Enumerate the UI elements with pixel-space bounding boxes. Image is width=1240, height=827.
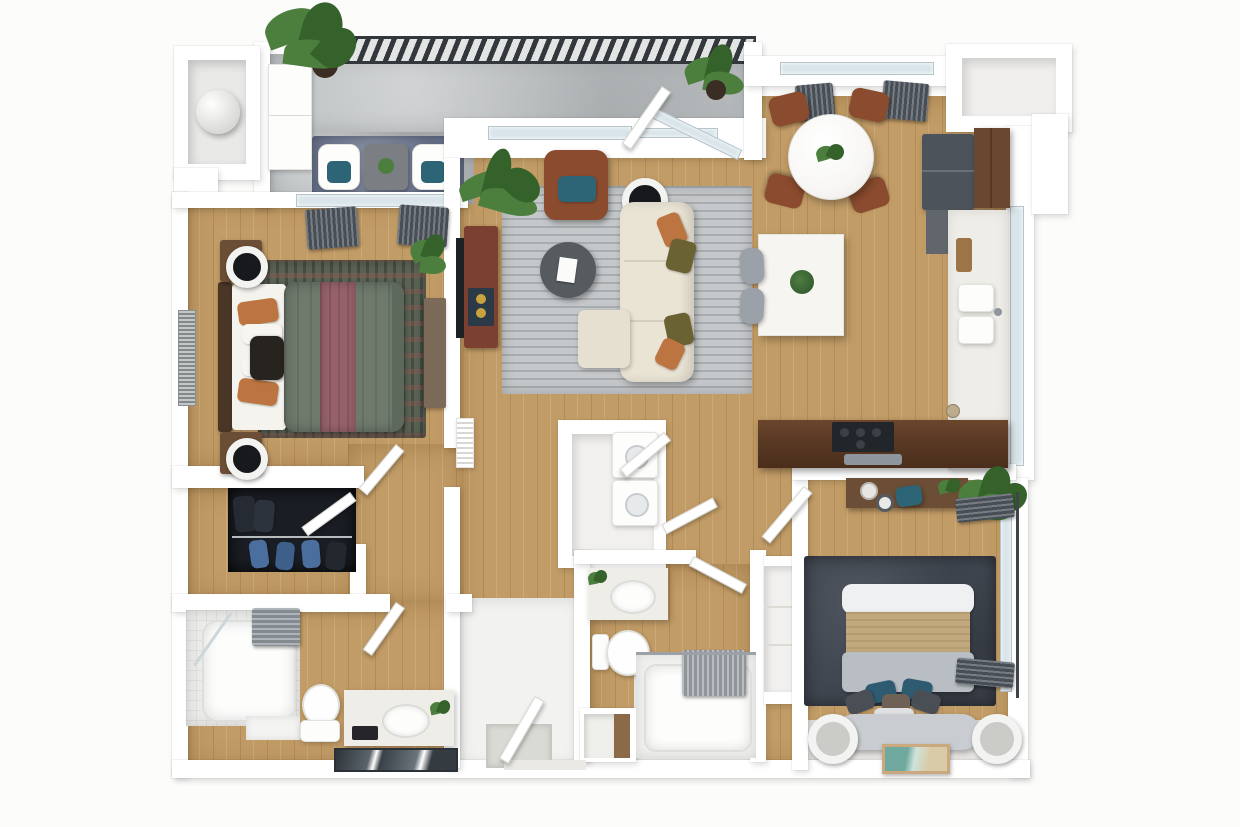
hanging-clothes-dark <box>253 499 276 533</box>
vanity-sink <box>382 704 430 738</box>
desk-chair <box>895 484 924 507</box>
burner <box>872 428 881 437</box>
balcony-side-table <box>364 144 408 190</box>
toilet-tank <box>300 720 340 742</box>
armchair-pillow-teal <box>558 176 596 202</box>
island-bowl-plant <box>790 270 814 294</box>
shower-rod <box>636 652 756 655</box>
refrigerator <box>922 134 974 210</box>
upper-cabinets <box>974 128 1010 208</box>
bar-stool <box>739 247 765 284</box>
floor-plan-canvas <box>0 0 1240 827</box>
room-bedroom2 <box>792 464 1020 776</box>
burner <box>856 440 865 449</box>
shower-curtain <box>252 608 300 646</box>
bedroom-plant <box>408 232 452 288</box>
living-palm-plant <box>458 142 548 252</box>
coffee-table-book <box>556 257 577 283</box>
desk-clock <box>876 494 894 512</box>
nightstand-lamp <box>226 246 268 288</box>
desk-lamp <box>860 482 878 500</box>
hanging-jeans <box>301 539 321 568</box>
dining-corner-plant <box>684 40 756 108</box>
table-centerpiece-plant <box>816 142 846 166</box>
curtain-rod <box>1016 492 1019 698</box>
leaning-mirror <box>334 748 458 772</box>
plant-leaf <box>825 141 846 162</box>
sink-basin <box>958 316 994 344</box>
vanity-tray <box>352 726 378 740</box>
dryer <box>612 480 658 526</box>
tub-step <box>246 716 300 740</box>
speaker-cone <box>476 308 486 318</box>
leaning-art <box>882 744 950 774</box>
bedroom-wall-art <box>178 310 196 406</box>
bed-headboard <box>218 282 232 432</box>
bed-foot-fold <box>392 284 404 430</box>
sofa-chaise <box>578 310 630 368</box>
bedroom-curtain <box>305 206 360 250</box>
speaker-cone <box>476 294 486 304</box>
sink-basin <box>958 284 994 312</box>
sink-faucet <box>994 308 1002 316</box>
shower-curtain2 <box>682 650 746 696</box>
cutting-board <box>956 238 972 272</box>
hanging-jeans <box>275 541 296 571</box>
cabinet-seam <box>990 128 992 208</box>
speaker-box <box>468 288 494 326</box>
water-heater <box>196 90 240 134</box>
dryer-door <box>625 493 649 517</box>
chair-cushion <box>327 161 351 183</box>
bed-center-decor <box>250 336 284 380</box>
balcony-chair <box>318 144 360 190</box>
bed-runner-mauve <box>320 282 356 432</box>
room-primary-bath <box>184 594 474 778</box>
vanity-plant <box>430 698 452 722</box>
leather-armchair <box>544 150 608 220</box>
bath2-plant <box>588 570 608 590</box>
hanging-clothes-dark <box>324 541 347 571</box>
hanging-jeans <box>248 539 270 569</box>
fridge-seam <box>922 170 974 172</box>
burner <box>856 428 865 437</box>
bed2-side-lamp <box>972 714 1022 764</box>
room-living <box>456 118 768 400</box>
counter-jar <box>946 404 960 418</box>
bed2-side-lamp <box>808 714 858 764</box>
room-primary-bedroom <box>186 198 466 468</box>
range-cooktop <box>832 422 894 452</box>
chair-cushion <box>421 161 445 183</box>
bed2-top-pillow <box>842 584 974 614</box>
nightstand-lamp <box>226 438 268 480</box>
burner <box>840 428 849 437</box>
bedroom2-curtain <box>955 658 1015 689</box>
bed2-tan-blanket <box>846 612 970 654</box>
table-plant <box>378 158 394 174</box>
room-utility-closet <box>174 46 260 180</box>
bedroom-south-wall <box>172 466 364 488</box>
plant-leaf <box>419 255 447 276</box>
round-coffee-table <box>540 242 596 298</box>
plant-pot <box>706 80 726 100</box>
wall-tv <box>456 238 464 338</box>
bedroom-dresser <box>424 298 446 408</box>
room-entry <box>460 594 582 770</box>
bar-stool <box>739 287 765 324</box>
balcony-plant <box>264 6 374 116</box>
bath2-tub-surround <box>636 652 756 758</box>
closet-rod <box>232 536 352 538</box>
bath2-sink <box>610 580 656 614</box>
